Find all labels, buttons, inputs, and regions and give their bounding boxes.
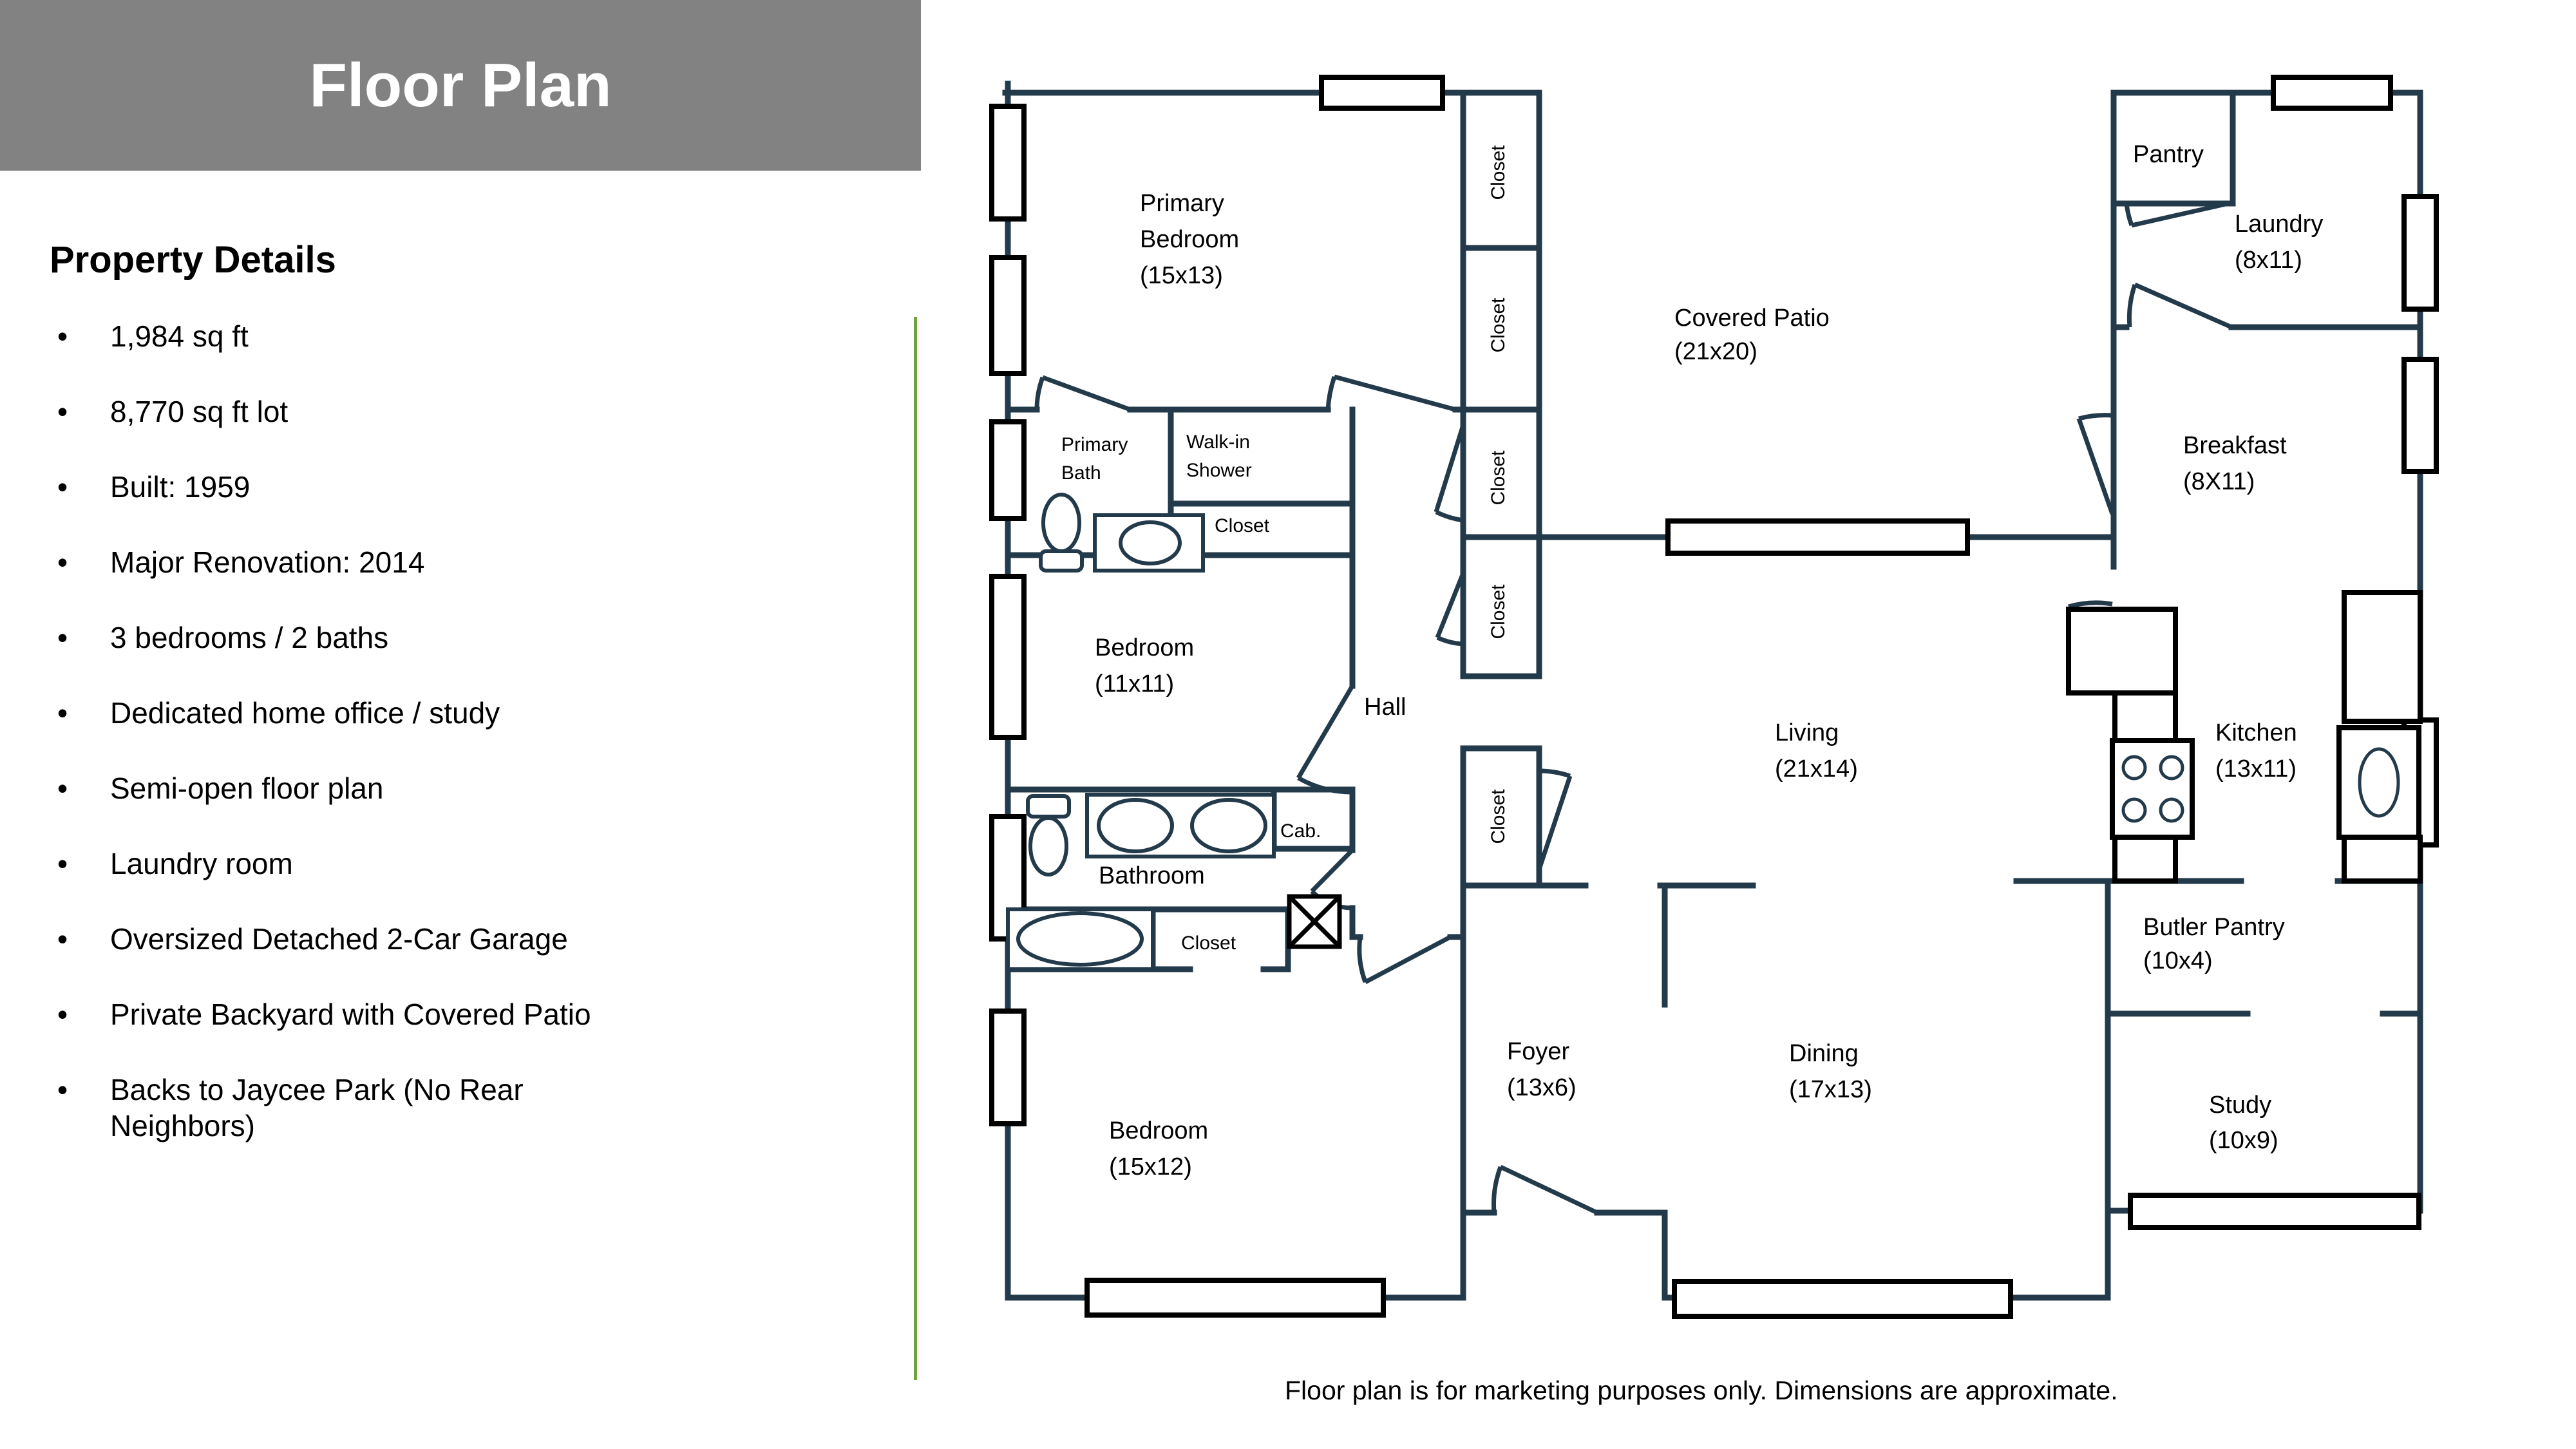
window-icon <box>1674 1282 2011 1316</box>
kitchen-counter-icon <box>2344 837 2420 881</box>
room-label-butler-pantry: Butler Pantry <box>2143 914 2285 941</box>
room-label-primary-bath: Bath <box>1061 462 1101 484</box>
sink-counter-icon <box>2339 728 2419 837</box>
room-label-primary-bedroom: Primary <box>1140 190 1224 217</box>
room-label-shower-closet: Closet <box>1215 515 1270 536</box>
window-icon <box>992 106 1024 219</box>
window-icon <box>992 422 1024 518</box>
toilet-tank-icon <box>1041 551 1082 571</box>
utility-chase-icon <box>1289 896 1340 947</box>
door-primary-bedroom <box>1328 377 1455 410</box>
door-hall-closet-lower <box>1437 573 1463 644</box>
sink-icon <box>1192 800 1265 851</box>
toilet-icon <box>1043 495 1079 551</box>
room-label-walk-in-shower: Walk-in <box>1186 431 1250 453</box>
room-label-walk-in-shower: Shower <box>1186 460 1252 481</box>
room-label-cab: Cab. <box>1280 820 1321 842</box>
room-label-study-dims: (10x9) <box>2209 1127 2278 1154</box>
kitchen-cabinet-icon <box>2069 609 2175 693</box>
room-label-dining-dims: (17x13) <box>1789 1076 1872 1103</box>
window-icon <box>2130 1195 2419 1227</box>
room-label-living-dims: (21x14) <box>1775 755 1858 782</box>
room-label-bedroom3-dims: (15x12) <box>1109 1153 1192 1180</box>
door-bedroom3 <box>1359 937 1450 982</box>
room-label-living: Living <box>1775 719 1839 746</box>
sink-icon <box>1121 522 1180 563</box>
door-breakfast <box>2079 415 2112 514</box>
stove-icon <box>2112 741 2192 837</box>
room-label-bedroom2-dims: (11x11) <box>1095 670 1174 697</box>
closet-label: Closet <box>1488 298 1509 353</box>
window-icon <box>992 576 1024 737</box>
room-label-laundry-dims: (8x11) <box>2235 247 2302 274</box>
window-icon <box>2404 359 2436 471</box>
room-label-butler-pantry-dims: (10x4) <box>2143 947 2213 974</box>
room-label-bath-closet: Closet <box>1181 933 1236 954</box>
room-label-study: Study <box>2209 1092 2271 1119</box>
room-label-primary-bedroom-dims: (15x13) <box>1140 262 1223 289</box>
door-living-closet <box>1539 771 1570 869</box>
window-icon <box>992 258 1024 374</box>
door-swing-arcs <box>1037 204 2231 1213</box>
window-icon <box>2404 196 2436 309</box>
window-icon <box>1668 521 1967 553</box>
room-label-primary-bath: Primary <box>1061 434 1128 455</box>
door-primary-bath <box>1037 377 1130 410</box>
slide: Floor Plan Property Details •1,984 sq ft… <box>0 0 2576 1449</box>
room-label-hall: Hall <box>1364 694 1406 721</box>
toilet-icon <box>1030 818 1066 875</box>
kitchen-counter-icon <box>2115 837 2175 881</box>
room-label-kitchen: Kitchen <box>2215 719 2297 746</box>
closet-label: Closet <box>1488 450 1509 506</box>
toilet-tank-icon <box>1028 796 1069 817</box>
closet-label: Closet <box>1488 584 1509 639</box>
window-icon <box>992 1011 1024 1124</box>
room-label-kitchen-dims: (13x11) <box>2215 755 2297 782</box>
door-bedroom2 <box>1298 686 1352 792</box>
closet-label: Closet <box>1488 789 1509 844</box>
door-pantry <box>2126 204 2228 225</box>
room-label-pantry: Pantry <box>2133 141 2204 168</box>
room-label-breakfast: Breakfast <box>2183 432 2287 459</box>
room-label-covered-patio: Covered Patio <box>1674 305 1830 332</box>
bath-fixtures <box>1008 495 1274 969</box>
window-icon <box>1321 77 1443 108</box>
window-icon <box>2273 77 2391 108</box>
sink-icon <box>1099 800 1172 851</box>
room-label-foyer-dims: (13x6) <box>1507 1074 1577 1101</box>
room-label-bathroom: Bathroom <box>1099 862 1205 889</box>
room-label-bedroom3: Bedroom <box>1109 1117 1208 1144</box>
room-label-foyer: Foyer <box>1507 1038 1569 1065</box>
closet-label: Closet <box>1488 145 1509 200</box>
door-hall-closet-upper <box>1436 425 1463 520</box>
room-label-bedroom2: Bedroom <box>1095 634 1194 661</box>
door-front-entry <box>1493 1167 1597 1213</box>
kitchen-counter-icon <box>2115 693 2175 741</box>
door-laundry <box>2129 285 2231 327</box>
room-label-laundry: Laundry <box>2235 211 2323 238</box>
disclaimer-text: Floor plan is for marketing purposes onl… <box>1285 1376 2118 1406</box>
window-icon <box>1087 1280 1383 1315</box>
room-label-dining: Dining <box>1789 1040 1859 1067</box>
room-label-primary-bedroom: Bedroom <box>1140 226 1239 253</box>
floor-plan: Primary Bedroom (15x13) Primary Bath Wal… <box>0 0 2576 1449</box>
bathtub-icon <box>1018 913 1142 965</box>
room-label-breakfast-dims: (8X11) <box>2183 468 2255 495</box>
room-label-covered-patio-dims: (21x20) <box>1674 338 1757 365</box>
fridge-icon <box>2344 592 2420 721</box>
